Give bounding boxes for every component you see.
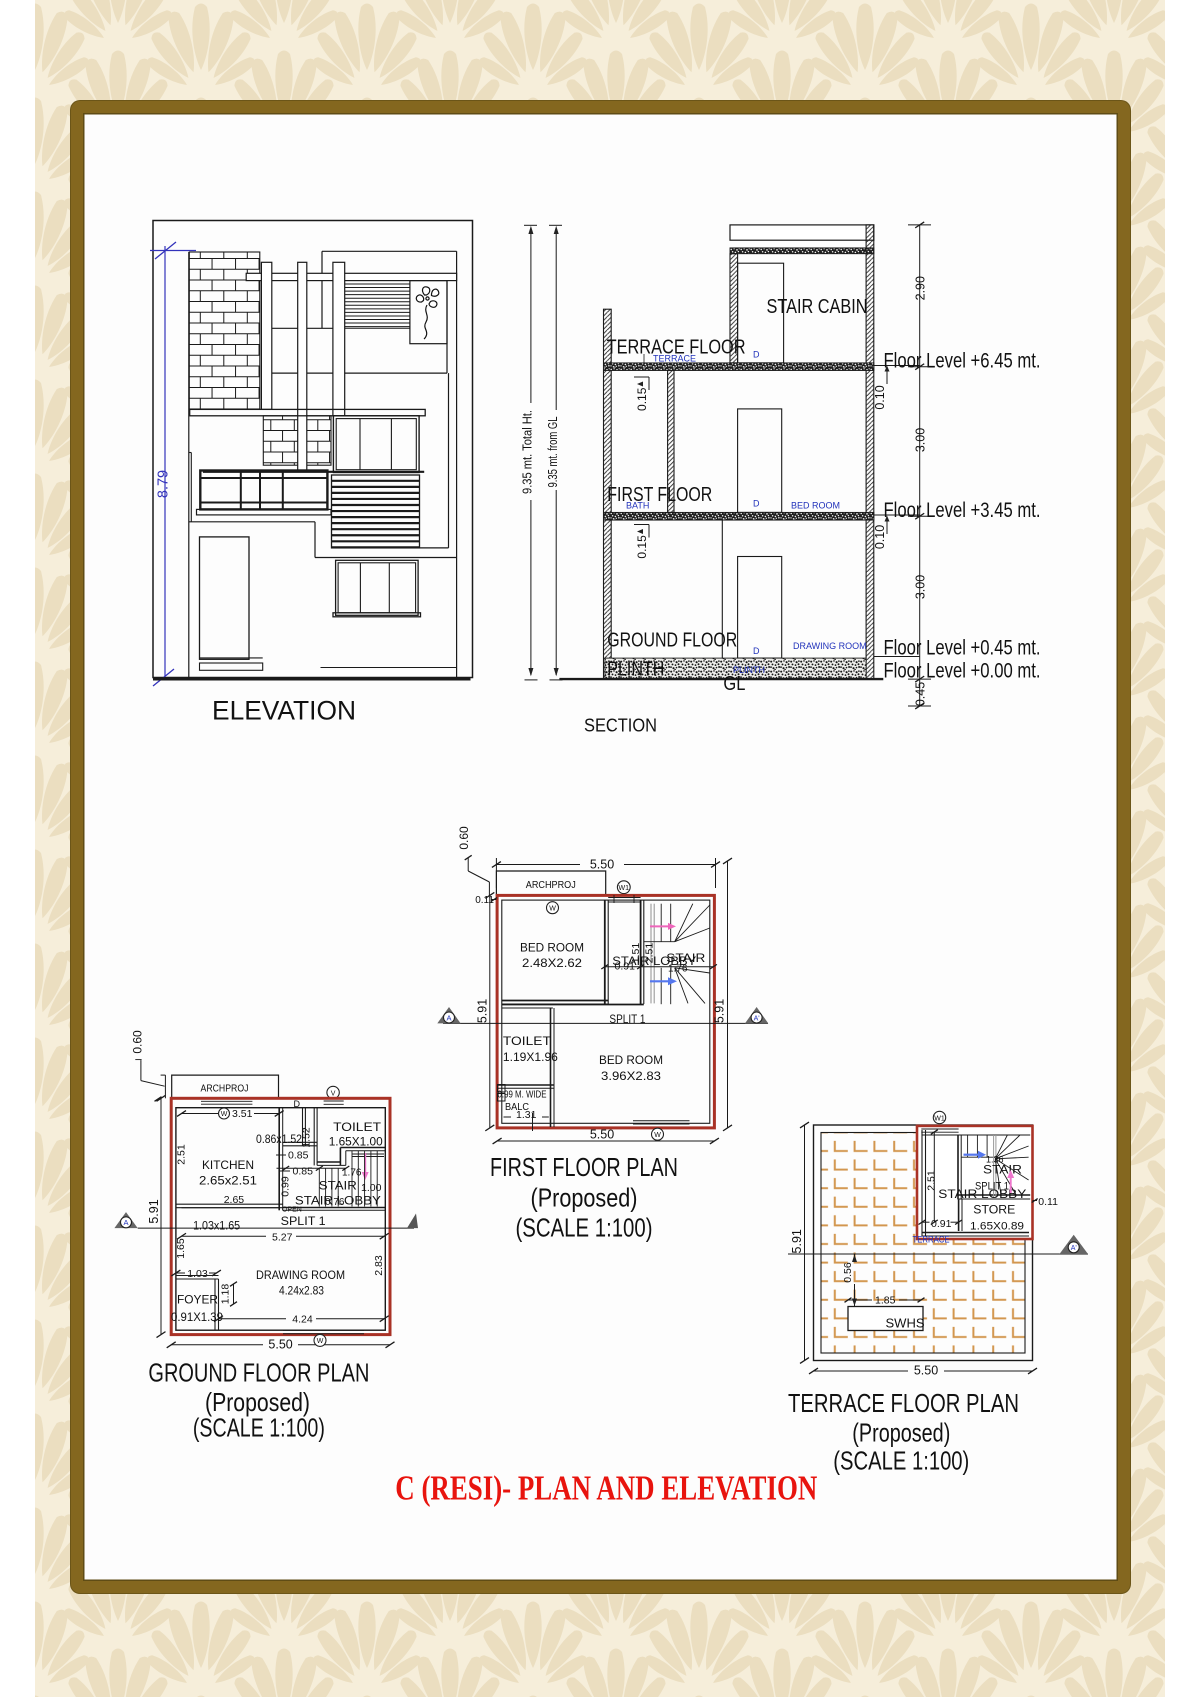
svg-text:5.91: 5.91: [713, 999, 727, 1023]
svg-text:STORE: STORE: [973, 1205, 1015, 1217]
svg-text:ELEVATION: ELEVATION: [212, 696, 356, 726]
svg-text:1.18: 1.18: [220, 1284, 232, 1305]
svg-text:1.65X1.00: 1.65X1.00: [329, 1135, 383, 1149]
svg-text:5.50: 5.50: [590, 858, 614, 872]
svg-text:1.76: 1.76: [668, 964, 688, 975]
svg-text:0.60: 0.60: [131, 1030, 145, 1054]
svg-text:D: D: [753, 499, 760, 509]
svg-text:1.65: 1.65: [175, 1238, 187, 1259]
svg-text:(Proposed): (Proposed): [852, 1418, 950, 1448]
svg-text:5.50: 5.50: [590, 1128, 614, 1142]
svg-text:SWHS: SWHS: [886, 1317, 925, 1331]
svg-text:W1: W1: [619, 885, 630, 892]
svg-text:5.91: 5.91: [476, 999, 490, 1023]
svg-text:ARCHPROJ: ARCHPROJ: [526, 879, 576, 891]
svg-text:0.10: 0.10: [873, 385, 887, 409]
svg-text:C (RESI)- PLAN AND ELEVATION: C (RESI)- PLAN AND ELEVATION: [395, 1469, 817, 1508]
svg-text:Floor Level +6.45 mt.: Floor Level +6.45 mt.: [884, 350, 1041, 373]
svg-text:4.24x2.83: 4.24x2.83: [279, 1284, 324, 1298]
svg-text:1.65X0.89: 1.65X0.89: [970, 1221, 1024, 1233]
svg-text:A': A': [1071, 1245, 1077, 1252]
svg-text:1.00: 1.00: [361, 1182, 382, 1194]
svg-text:5.91: 5.91: [147, 1199, 161, 1223]
svg-text:TERRACE FLOOR PLAN: TERRACE FLOOR PLAN: [788, 1388, 1019, 1418]
svg-text:2.51: 2.51: [176, 1144, 188, 1165]
svg-text:A: A: [123, 1218, 128, 1227]
svg-text:1.85: 1.85: [875, 1295, 896, 1307]
svg-text:GROUND FLOOR PLAN: GROUND FLOOR PLAN: [148, 1357, 369, 1387]
svg-text:STAIR: STAIR: [319, 1179, 357, 1193]
svg-text:1.36: 1.36: [986, 1155, 1004, 1165]
svg-text:2.51: 2.51: [644, 943, 656, 964]
svg-text:STAIR LOBBY: STAIR LOBBY: [938, 1187, 1026, 1201]
svg-text:W: W: [221, 1111, 228, 1118]
svg-text:3.00: 3.00: [914, 428, 928, 452]
svg-text:W: W: [654, 1132, 661, 1139]
svg-text:0.85: 0.85: [288, 1150, 309, 1162]
svg-text:3.51: 3.51: [232, 1108, 253, 1120]
svg-text:BED ROOM: BED ROOM: [520, 941, 584, 955]
svg-text:SPLIT 1: SPLIT 1: [281, 1214, 326, 1228]
svg-text:BED ROOM: BED ROOM: [791, 501, 840, 511]
svg-text:W: W: [317, 1338, 324, 1345]
svg-text:TERRACE: TERRACE: [653, 354, 696, 364]
svg-text:5.91: 5.91: [790, 1229, 804, 1253]
svg-text:1.52: 1.52: [301, 1127, 313, 1148]
svg-text:0.91: 0.91: [931, 1218, 952, 1230]
svg-text:0.85: 0.85: [293, 1166, 314, 1178]
svg-text:D: D: [753, 350, 760, 360]
svg-text:0.99 M. WIDE: 0.99 M. WIDE: [498, 1090, 547, 1101]
svg-text:TOILET: TOILET: [503, 1034, 552, 1048]
svg-text:2.65x2.51: 2.65x2.51: [199, 1174, 257, 1188]
svg-text:PLINTH: PLINTH: [607, 658, 664, 680]
svg-text:W1: W1: [934, 1115, 945, 1122]
svg-text:1.19X1.96: 1.19X1.96: [503, 1050, 558, 1064]
svg-text:1.31: 1.31: [516, 1109, 537, 1121]
svg-text:3.00: 3.00: [914, 575, 928, 599]
svg-text:STAIR: STAIR: [983, 1163, 1022, 1177]
svg-text:0.91X1.39: 0.91X1.39: [171, 1310, 223, 1324]
svg-text:BED ROOM: BED ROOM: [599, 1053, 663, 1067]
svg-text:DRAWING ROOM: DRAWING ROOM: [793, 641, 867, 651]
svg-text:8.79: 8.79: [156, 470, 172, 498]
svg-text:9.35 mt. from GL: 9.35 mt. from GL: [545, 417, 560, 488]
svg-text:W: W: [549, 906, 556, 913]
svg-text:SECTION: SECTION: [584, 715, 657, 735]
svg-text:2.65: 2.65: [224, 1194, 245, 1206]
svg-text:0.15: 0.15: [635, 535, 649, 559]
svg-text:0.15: 0.15: [635, 387, 649, 411]
svg-text:(Proposed): (Proposed): [531, 1183, 638, 1213]
svg-text:0.45: 0.45: [914, 682, 928, 706]
svg-text:FIRST FLOOR PLAN: FIRST FLOOR PLAN: [490, 1152, 678, 1182]
svg-text:KITCHEN: KITCHEN: [202, 1158, 254, 1172]
svg-text:TOILET: TOILET: [333, 1120, 382, 1134]
svg-text:1.03: 1.03: [187, 1268, 208, 1280]
svg-text:TERRACE: TERRACE: [913, 1235, 950, 1245]
svg-text:2.48X2.62: 2.48X2.62: [522, 956, 582, 970]
svg-text:(SCALE 1:100): (SCALE 1:100): [193, 1413, 325, 1443]
svg-text:STAIR LOBBY: STAIR LOBBY: [295, 1194, 381, 1208]
svg-text:0.91: 0.91: [615, 961, 636, 973]
svg-text:(SCALE 1:100): (SCALE 1:100): [516, 1213, 653, 1243]
svg-text:1.03x1.65: 1.03x1.65: [193, 1219, 240, 1233]
svg-text:STAIR CABIN: STAIR CABIN: [767, 296, 868, 318]
svg-text:ARCHPROJ: ARCHPROJ: [201, 1083, 249, 1095]
svg-text:FOYER: FOYER: [177, 1293, 218, 1307]
svg-text:GL: GL: [723, 673, 745, 695]
svg-text:DRAWING ROOM: DRAWING ROOM: [256, 1268, 345, 1282]
svg-text:0.56: 0.56: [842, 1262, 854, 1283]
svg-text:4.24: 4.24: [292, 1314, 313, 1326]
svg-text:D: D: [294, 1099, 301, 1109]
svg-text:2.51: 2.51: [925, 1170, 937, 1191]
svg-text:3.96X2.83: 3.96X2.83: [601, 1069, 661, 1083]
svg-text:V: V: [331, 1090, 336, 1097]
svg-text:FIRST FLOOR: FIRST FLOOR: [607, 484, 712, 506]
svg-text:Floor Level +3.45 mt.: Floor Level +3.45 mt.: [884, 499, 1041, 522]
svg-text:0.86x1.52: 0.86x1.52: [256, 1132, 302, 1146]
svg-text:GROUND FLOOR: GROUND FLOOR: [607, 630, 737, 652]
svg-text:1.76: 1.76: [342, 1168, 362, 1179]
svg-text:5.50: 5.50: [914, 1364, 938, 1378]
svg-text:0.60: 0.60: [457, 826, 471, 850]
svg-text:2.90: 2.90: [914, 276, 928, 300]
svg-text:Floor Level +0.00 mt.: Floor Level +0.00 mt.: [884, 659, 1041, 682]
svg-text:5.27: 5.27: [272, 1232, 293, 1244]
svg-text:BATH: BATH: [626, 501, 649, 511]
svg-text:9.35 mt. Total Ht.: 9.35 mt. Total Ht.: [520, 410, 535, 494]
svg-text:(SCALE 1:100): (SCALE 1:100): [833, 1445, 969, 1475]
svg-text:OPEN: OPEN: [282, 1207, 302, 1214]
svg-text:0.99: 0.99: [280, 1176, 292, 1197]
svg-text:PLINTH: PLINTH: [733, 665, 765, 675]
svg-text:D: D: [753, 646, 760, 656]
svg-text:0.10: 0.10: [873, 525, 887, 549]
svg-text:A': A': [754, 1016, 760, 1023]
svg-text:0.11: 0.11: [1038, 1196, 1058, 1208]
svg-text:2.83: 2.83: [373, 1255, 385, 1276]
svg-text:5.50: 5.50: [268, 1338, 292, 1352]
svg-text:A: A: [446, 1014, 451, 1023]
svg-text:Floor Level +0.45 mt.: Floor Level +0.45 mt.: [884, 637, 1041, 660]
